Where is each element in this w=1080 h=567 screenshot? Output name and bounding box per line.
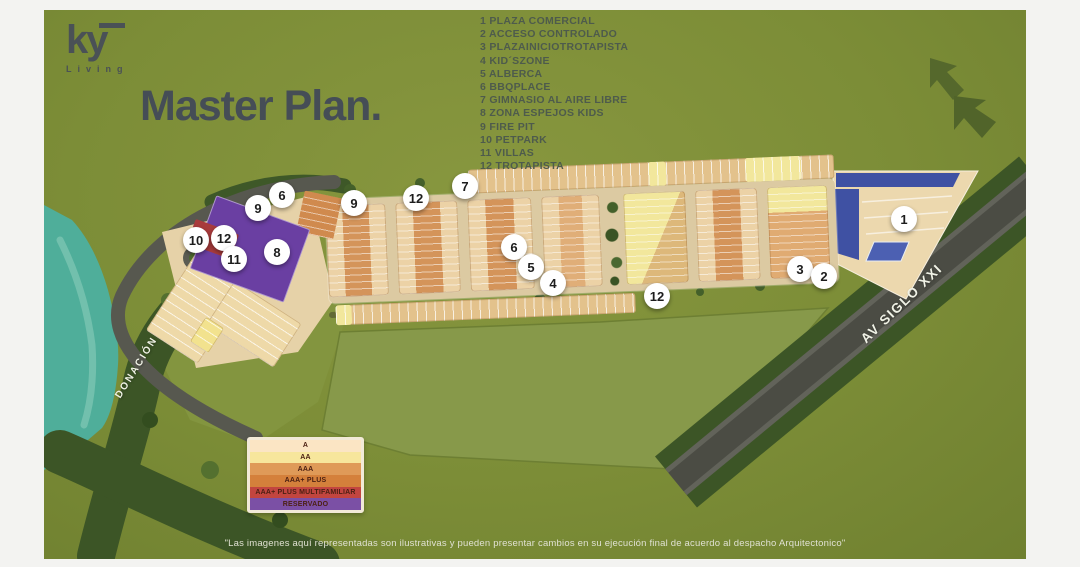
category-row: AAA+ PLUS (250, 475, 361, 487)
category-row: AAA (250, 463, 361, 475)
category-label: RESERVADO (283, 501, 329, 508)
master-plan-page: DONACIÓN AV SIGLO XXI 691012118912765412… (0, 0, 1080, 567)
map-marker-12: 12 (644, 283, 670, 309)
block-tree-gap (603, 193, 625, 286)
category-label: AAA (298, 466, 314, 473)
category-label: AA (300, 454, 311, 461)
map-marker-12: 12 (403, 185, 429, 211)
amenity-item: 7 GIMNASIO AL AIRE LIBRE (480, 94, 628, 107)
frame-top (44, 0, 1026, 10)
category-row: AAA+ PLUS MULTIFAMILIAR (250, 487, 361, 499)
amenity-item: 5 ALBERCA (480, 68, 628, 81)
logo-macron-bar (99, 23, 125, 28)
map-marker-5: 5 (518, 254, 544, 280)
disclaimer-text: "Las imagenes aquí representadas son ilu… (44, 538, 1026, 549)
amenity-item: 10 PETPARK (480, 134, 628, 147)
commercial-roof-top (836, 173, 960, 187)
category-row: AA (250, 452, 361, 464)
map-marker-8: 8 (264, 239, 290, 265)
category-label: AAA+ PLUS MULTIFAMILIAR (255, 489, 355, 496)
housing-block (695, 188, 761, 283)
map-marker-9: 9 (245, 195, 271, 221)
map-marker-10: 10 (183, 227, 209, 253)
housing-block (623, 191, 689, 286)
logo-subtext: Living (66, 64, 129, 74)
housing-block (395, 200, 461, 295)
amenity-item: 8 ZONA ESPEJOS KIDS (480, 107, 628, 120)
map-marker-11: 11 (221, 246, 247, 272)
page-title: Master Plan. (140, 82, 381, 131)
map-marker-6: 6 (269, 182, 295, 208)
plaza-pool (866, 242, 909, 261)
northwest-arrows-icon (912, 46, 1017, 146)
amenity-item: 1 PLAZA COMERCIAL (480, 15, 628, 28)
map-marker-3: 3 (787, 256, 813, 282)
map-marker-1: 1 (891, 206, 917, 232)
amenity-item: 9 FIRE PIT (480, 121, 628, 134)
amenities-list: 1 PLAZA COMERCIAL2 ACCESO CONTROLADO3 PL… (480, 15, 628, 173)
north-house-row-yellow (648, 161, 667, 186)
frame-left (0, 0, 44, 567)
brand-logo: ky Living (66, 20, 129, 74)
category-label: AAA+ PLUS (285, 477, 327, 484)
river-water (44, 205, 118, 470)
amenity-item: 6 BBQPLACE (480, 81, 628, 94)
amenity-item: 2 ACCESO CONTROLADO (480, 28, 628, 41)
map-marker-9: 9 (341, 190, 367, 216)
amenity-item: 3 PLAZAINICIOTROTAPISTA (480, 41, 628, 54)
amenity-item: 11 VILLAS (480, 147, 628, 160)
category-row: RESERVADO (250, 498, 361, 510)
north-house-row-yellow (745, 156, 802, 182)
south-house-row-yellow (335, 305, 352, 326)
category-legend: AAAAAAAAA+ PLUSAAA+ PLUS MULTIFAMILIARRE… (247, 437, 364, 513)
category-row: A (250, 440, 361, 452)
category-label: A (303, 442, 308, 449)
map-marker-7: 7 (452, 173, 478, 199)
amenity-item: 4 KID´SZONE (480, 55, 628, 68)
map-marker-2: 2 (811, 263, 837, 289)
frame-bottom (44, 559, 1026, 567)
frame-right (1026, 0, 1080, 567)
housing-band (318, 154, 844, 328)
map-marker-4: 4 (540, 270, 566, 296)
amenity-item: 12 TROTAPISTA (480, 160, 628, 173)
